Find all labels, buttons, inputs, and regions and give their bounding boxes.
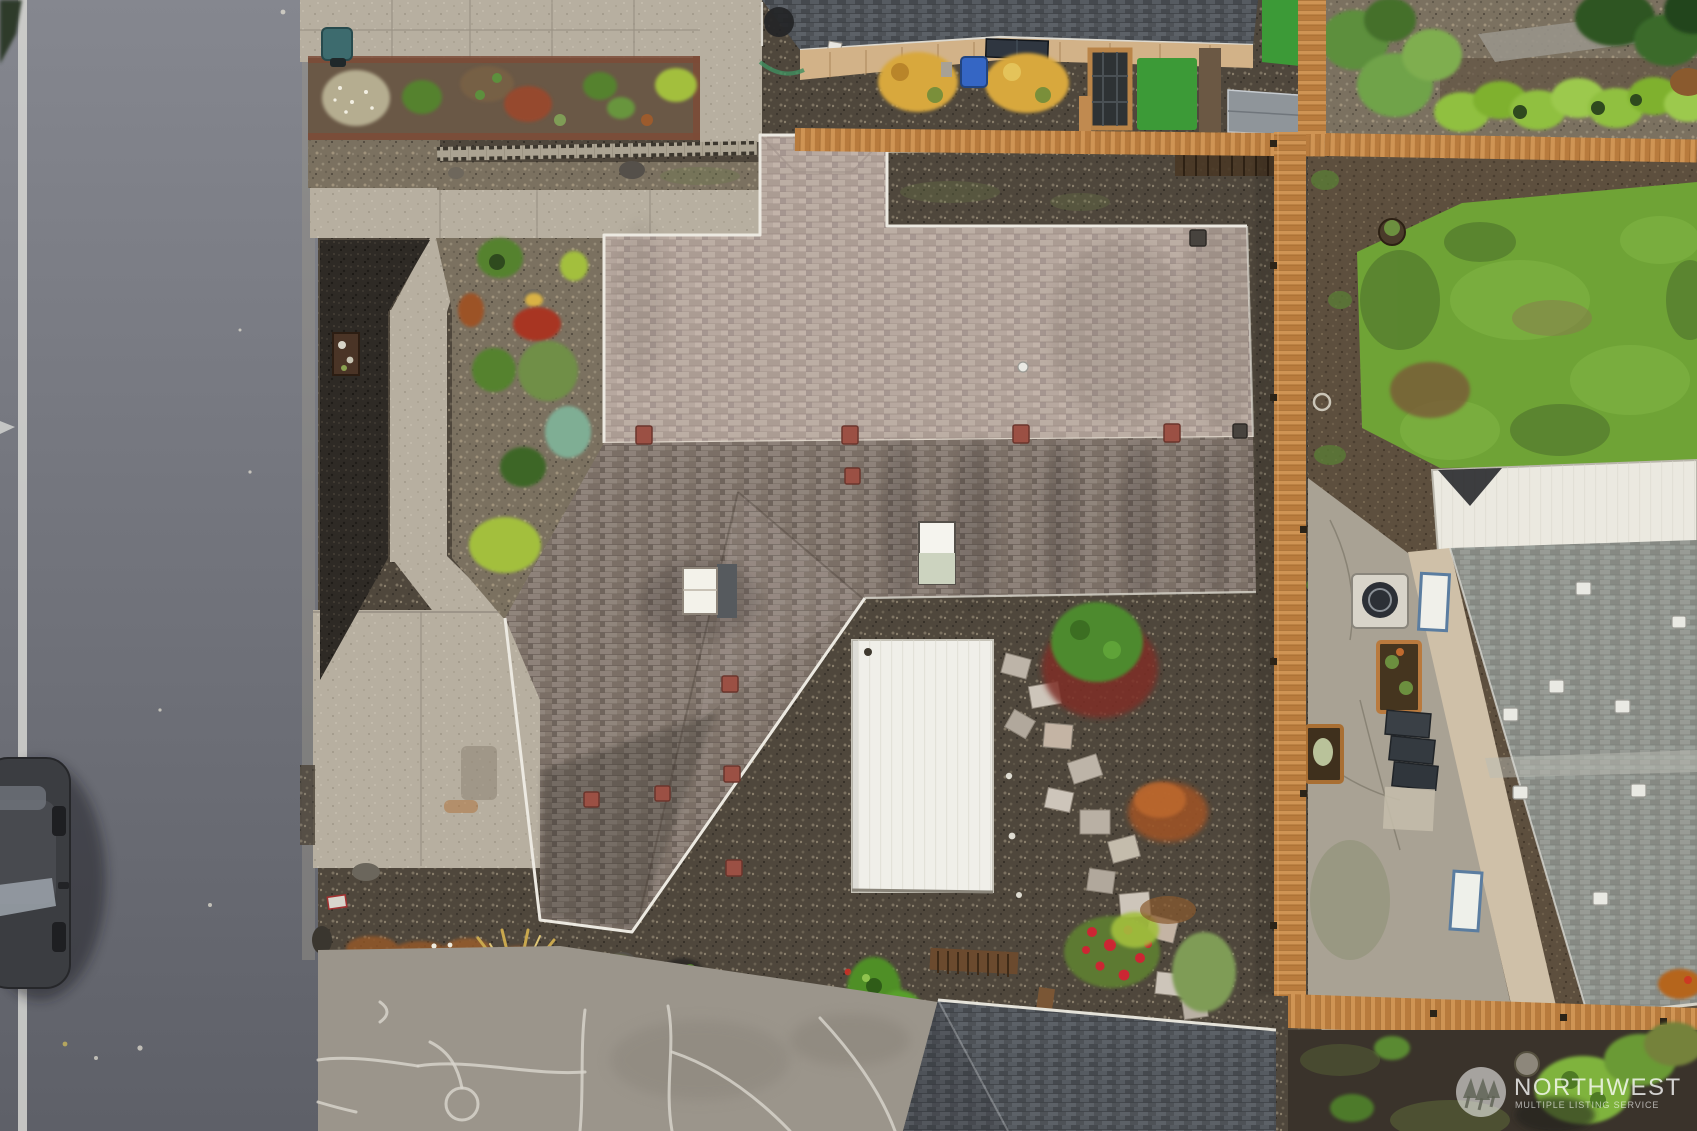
aerial-photo-canvas: NORTHWEST MULTIPLE LISTING SERVICE — [0, 0, 1697, 1131]
storage-bins — [1385, 710, 1438, 790]
aerial-photo: NORTHWEST MULTIPLE LISTING SERVICE — [0, 0, 1697, 1131]
watermark-brand: NORTHWEST — [1514, 1074, 1682, 1101]
flag-ornament — [327, 895, 346, 909]
turtle-rock-ornament — [1515, 1052, 1539, 1076]
blue-bin — [961, 57, 987, 87]
mulch-planter-box — [333, 333, 359, 375]
yellow-shrub — [878, 52, 958, 112]
pergola-glass-roof — [1090, 50, 1130, 128]
yellow-shrub — [985, 53, 1069, 113]
artificial-turf — [1262, 0, 1300, 66]
mls-watermark: NORTHWEST MULTIPLE LISTING SERVICE — [1456, 1067, 1682, 1117]
covered-patio — [852, 640, 993, 892]
watermark-tagline: MULTIPLE LISTING SERVICE — [1515, 1100, 1659, 1110]
artificial-turf — [1137, 58, 1197, 130]
front-garden-beds — [308, 56, 700, 140]
heat-pump — [1352, 574, 1408, 628]
street — [0, 0, 318, 1131]
